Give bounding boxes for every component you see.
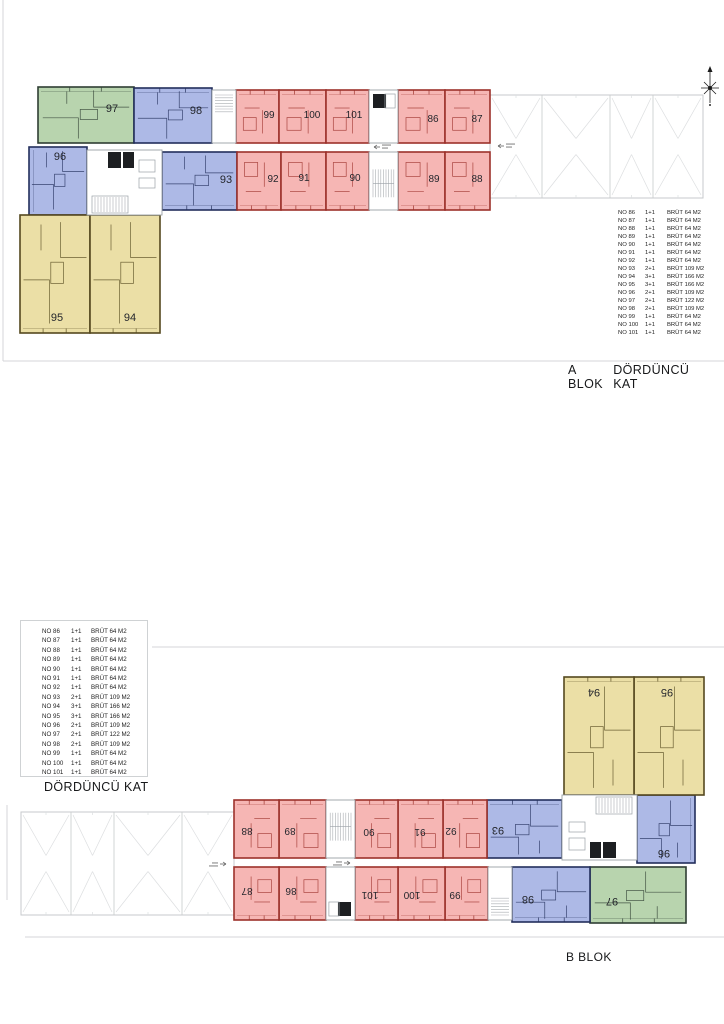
unit-number: NO 91 bbox=[42, 674, 71, 683]
plan-shape bbox=[506, 147, 512, 148]
unit-label-92: 92 bbox=[267, 174, 279, 185]
unit-list-row: NO 89 1+1 BRÜT 64 M2 bbox=[618, 233, 714, 241]
unit-list-row: NO 90 1+1 BRÜT 64 M2 bbox=[42, 665, 147, 674]
parking-area bbox=[21, 812, 234, 915]
unit-label-94: 94 bbox=[124, 312, 136, 324]
unit-area: BRÜT 109 M2 bbox=[667, 305, 714, 313]
unit-number: NO 101 bbox=[42, 768, 71, 777]
plan-shape bbox=[21, 812, 234, 915]
unit-label-99: 99 bbox=[263, 110, 275, 121]
unit-list-row: NO 89 1+1 BRÜT 64 M2 bbox=[42, 655, 147, 664]
unit-area: BRÜT 64 M2 bbox=[667, 233, 714, 241]
unit-list-row: NO 86 1+1 BRÜT 64 M2 bbox=[42, 627, 147, 636]
unit-list-row: NO 101 1+1 BRÜT 64 M2 bbox=[618, 329, 714, 337]
unit-number: NO 89 bbox=[618, 233, 645, 241]
unit-87: 87 bbox=[445, 90, 490, 143]
unit-type: 1+1 bbox=[71, 674, 91, 683]
unit-list-row: NO 99 1+1 BRÜT 64 M2 bbox=[42, 749, 147, 758]
elevator-shaft bbox=[590, 842, 601, 858]
caption-block-b: B BLOK bbox=[566, 950, 612, 964]
unit-area: BRÜT 64 M2 bbox=[91, 674, 147, 683]
unit-type: 1+1 bbox=[645, 209, 667, 217]
unit-type: 2+1 bbox=[71, 730, 91, 739]
unit-99: 99 bbox=[445, 867, 488, 920]
unit-label-92: 92 bbox=[445, 825, 457, 836]
unit-98: 98 bbox=[512, 867, 590, 922]
unit-92: 92 bbox=[237, 152, 281, 210]
unit-number: NO 90 bbox=[42, 665, 71, 674]
unit-list-row: NO 91 1+1 BRÜT 64 M2 bbox=[42, 674, 147, 683]
unit-list-row: NO 95 3+1 BRÜT 166 M2 bbox=[618, 281, 714, 289]
unit-list-row: NO 100 1+1 BRÜT 64 M2 bbox=[618, 321, 714, 329]
unit-number: NO 93 bbox=[618, 265, 645, 273]
unit-list-row: NO 96 2+1 BRÜT 109 M2 bbox=[618, 289, 714, 297]
unit-list-row: NO 101 1+1 BRÜT 64 M2 bbox=[42, 768, 147, 777]
unit-label-99: 99 bbox=[449, 889, 461, 900]
unit-label-95: 95 bbox=[661, 686, 673, 698]
unit-number: NO 89 bbox=[42, 655, 71, 664]
unit-area: BRÜT 122 M2 bbox=[667, 297, 714, 305]
plan-shape bbox=[382, 145, 391, 146]
unit-area: BRÜT 64 M2 bbox=[667, 313, 714, 321]
unit-label-98: 98 bbox=[190, 105, 202, 117]
unit-area: BRÜT 166 M2 bbox=[667, 273, 714, 281]
unit-number: NO 88 bbox=[618, 225, 645, 233]
arrow-icon bbox=[344, 861, 350, 865]
unit-93: 93 bbox=[487, 800, 562, 858]
unit-list-row: NO 99 1+1 BRÜT 64 M2 bbox=[618, 313, 714, 321]
unit-type: 1+1 bbox=[645, 329, 667, 337]
unit-type: 1+1 bbox=[71, 646, 91, 655]
unit-87: 87 bbox=[234, 867, 279, 920]
unit-number: NO 95 bbox=[618, 281, 645, 289]
unit-area: BRÜT 166 M2 bbox=[667, 281, 714, 289]
parking-area bbox=[490, 95, 703, 198]
unit-label-93: 93 bbox=[492, 824, 504, 836]
unit-type: 1+1 bbox=[645, 249, 667, 257]
plan-shape bbox=[38, 87, 134, 143]
plan-shape bbox=[209, 865, 218, 866]
plan-shape bbox=[336, 861, 342, 862]
unit-86: 86 bbox=[398, 90, 445, 143]
floor-plan-canvas: 9798991001018687969392919089889594979899… bbox=[0, 0, 724, 1024]
unit-number: NO 98 bbox=[618, 305, 645, 313]
unit-number: NO 100 bbox=[618, 321, 645, 329]
unit-list-row: NO 93 2+1 BRÜT 109 M2 bbox=[618, 265, 714, 273]
unit-97: 97 bbox=[38, 87, 134, 143]
unit-type: 1+1 bbox=[645, 233, 667, 241]
unit-label-96: 96 bbox=[658, 847, 670, 859]
unit-list-row: NO 90 1+1 BRÜT 64 M2 bbox=[618, 241, 714, 249]
unit-list-row: NO 88 1+1 BRÜT 64 M2 bbox=[618, 225, 714, 233]
unit-97: 97 bbox=[590, 867, 686, 923]
unit-area: BRÜT 64 M2 bbox=[91, 665, 147, 674]
unit-area: BRÜT 64 M2 bbox=[667, 249, 714, 257]
plan-shape bbox=[708, 66, 713, 72]
unit-92: 92 bbox=[443, 800, 487, 858]
unit-label-88: 88 bbox=[471, 174, 483, 185]
unit-area: BRÜT 64 M2 bbox=[91, 749, 147, 758]
unit-type: 1+1 bbox=[645, 217, 667, 225]
unit-type: 2+1 bbox=[645, 265, 667, 273]
unit-number: NO 94 bbox=[618, 273, 645, 281]
unit-type: 1+1 bbox=[645, 257, 667, 265]
unit-label-86: 86 bbox=[427, 114, 439, 125]
unit-99: 99 bbox=[236, 90, 279, 143]
unit-number: NO 100 bbox=[42, 759, 71, 768]
elevator-shaft bbox=[373, 94, 386, 108]
unit-89: 89 bbox=[279, 800, 326, 858]
unit-label-95: 95 bbox=[51, 312, 63, 324]
unit-list-row: NO 93 2+1 BRÜT 109 M2 bbox=[42, 693, 147, 702]
unit-100: 100 bbox=[398, 867, 445, 920]
unit-type: 3+1 bbox=[645, 281, 667, 289]
unit-type: 1+1 bbox=[71, 768, 91, 777]
corridor-annotation bbox=[333, 861, 350, 866]
unit-area: BRÜT 166 M2 bbox=[91, 712, 147, 721]
plan-shape bbox=[234, 800, 279, 858]
unit-94: 94 bbox=[564, 677, 634, 795]
unit-number: NO 87 bbox=[618, 217, 645, 225]
unit-area: BRÜT 64 M2 bbox=[667, 225, 714, 233]
unit-list-row: NO 92 1+1 BRÜT 64 M2 bbox=[42, 683, 147, 692]
unit-list-row: NO 91 1+1 BRÜT 64 M2 bbox=[618, 249, 714, 257]
unit-number: NO 94 bbox=[42, 702, 71, 711]
unit-101: 101 bbox=[355, 867, 398, 920]
unit-type: 2+1 bbox=[645, 305, 667, 313]
unit-list-row: NO 87 1+1 BRÜT 64 M2 bbox=[618, 217, 714, 225]
plan-shape bbox=[234, 867, 279, 920]
unit-88: 88 bbox=[445, 152, 490, 210]
unit-label-91: 91 bbox=[298, 173, 310, 184]
unit-type: 3+1 bbox=[71, 702, 91, 711]
unit-label-88: 88 bbox=[241, 825, 253, 836]
plan-shape bbox=[333, 864, 342, 865]
unit-list-row: NO 87 1+1 BRÜT 64 M2 bbox=[42, 636, 147, 645]
unit-number: NO 98 bbox=[42, 740, 71, 749]
unit-96: 96 bbox=[29, 147, 87, 215]
elevator-shaft bbox=[603, 842, 616, 858]
unit-list-row: NO 86 1+1 BRÜT 64 M2 bbox=[618, 209, 714, 217]
unit-number: NO 96 bbox=[618, 289, 645, 297]
unit-list-row: NO 92 1+1 BRÜT 64 M2 bbox=[618, 257, 714, 265]
unit-number: NO 96 bbox=[42, 721, 71, 730]
unit-area: BRÜT 109 M2 bbox=[91, 721, 147, 730]
unit-number: NO 99 bbox=[618, 313, 645, 321]
unit-list-b-box: NO 86 1+1 BRÜT 64 M2 NO 87 1+1 BRÜT 64 M… bbox=[20, 620, 148, 777]
unit-list-row: NO 96 2+1 BRÜT 109 M2 bbox=[42, 721, 147, 730]
unit-number: NO 90 bbox=[618, 241, 645, 249]
corridor-annotation bbox=[374, 145, 391, 150]
unit-label-96: 96 bbox=[54, 151, 66, 163]
unit-type: 1+1 bbox=[645, 225, 667, 233]
unit-list-row: NO 94 3+1 BRÜT 166 M2 bbox=[42, 702, 147, 711]
caption-floor-b: DÖRDÜNCÜ KAT bbox=[44, 780, 149, 794]
unit-type: 2+1 bbox=[645, 289, 667, 297]
unit-list-row: NO 97 2+1 BRÜT 122 M2 bbox=[618, 297, 714, 305]
unit-label-101: 101 bbox=[346, 110, 363, 121]
unit-area: BRÜT 109 M2 bbox=[91, 693, 147, 702]
unit-88: 88 bbox=[234, 800, 279, 858]
unit-type: 1+1 bbox=[71, 759, 91, 768]
north-arrow-icon bbox=[701, 66, 719, 106]
unit-list-row: NO 98 2+1 BRÜT 109 M2 bbox=[618, 305, 714, 313]
plan-shape bbox=[382, 148, 388, 149]
elevator-shaft bbox=[108, 152, 121, 168]
unit-type: 2+1 bbox=[645, 297, 667, 305]
unit-area: BRÜT 166 M2 bbox=[91, 702, 147, 711]
unit-label-91: 91 bbox=[414, 826, 426, 837]
plan-shape bbox=[490, 95, 703, 198]
unit-area: BRÜT 64 M2 bbox=[91, 646, 147, 655]
unit-area: BRÜT 64 M2 bbox=[91, 683, 147, 692]
plan-shape bbox=[506, 144, 515, 145]
unit-type: 3+1 bbox=[645, 273, 667, 281]
unit-number: NO 92 bbox=[42, 683, 71, 692]
plan-shape bbox=[445, 152, 490, 210]
unit-number: NO 99 bbox=[42, 749, 71, 758]
unit-area: BRÜT 109 M2 bbox=[667, 265, 714, 273]
unit-area: BRÜT 109 M2 bbox=[91, 740, 147, 749]
plan-shape bbox=[445, 90, 490, 143]
unit-type: 1+1 bbox=[645, 241, 667, 249]
unit-area: BRÜT 64 M2 bbox=[91, 759, 147, 768]
unit-area: BRÜT 64 M2 bbox=[91, 655, 147, 664]
unit-area: BRÜT 64 M2 bbox=[91, 636, 147, 645]
unit-93: 93 bbox=[162, 152, 237, 210]
unit-number: NO 88 bbox=[42, 646, 71, 655]
unit-type: 1+1 bbox=[71, 636, 91, 645]
unit-area: BRÜT 122 M2 bbox=[91, 730, 147, 739]
block-a-label: A BLOK bbox=[568, 363, 613, 391]
unit-label-100: 100 bbox=[403, 889, 420, 900]
unit-type: 2+1 bbox=[71, 721, 91, 730]
unit-number: NO 101 bbox=[618, 329, 645, 337]
unit-type: 1+1 bbox=[71, 627, 91, 636]
unit-area: BRÜT 64 M2 bbox=[667, 257, 714, 265]
unit-area: BRÜT 64 M2 bbox=[667, 329, 714, 337]
page: 9798991001018687969392919089889594979899… bbox=[0, 0, 724, 1024]
unit-area: BRÜT 64 M2 bbox=[91, 627, 147, 636]
unit-label-100: 100 bbox=[304, 110, 321, 121]
unit-type: 1+1 bbox=[71, 749, 91, 758]
unit-type: 1+1 bbox=[71, 683, 91, 692]
unit-area: BRÜT 64 M2 bbox=[91, 768, 147, 777]
elevator-shaft bbox=[123, 152, 134, 168]
unit-number: NO 92 bbox=[618, 257, 645, 265]
unit-label-97: 97 bbox=[606, 895, 618, 907]
unit-label-97: 97 bbox=[106, 103, 118, 115]
unit-area: BRÜT 64 M2 bbox=[667, 217, 714, 225]
unit-list-row: NO 97 2+1 BRÜT 122 M2 bbox=[42, 730, 147, 739]
unit-98: 98 bbox=[134, 88, 212, 143]
unit-label-87: 87 bbox=[471, 114, 483, 125]
unit-list-a: NO 86 1+1 BRÜT 64 M2 NO 87 1+1 BRÜT 64 M… bbox=[618, 209, 714, 337]
arrow-icon bbox=[374, 145, 380, 149]
unit-type: 3+1 bbox=[71, 712, 91, 721]
unit-label-86: 86 bbox=[285, 885, 297, 896]
unit-list-row: NO 95 3+1 BRÜT 166 M2 bbox=[42, 712, 147, 721]
unit-number: NO 86 bbox=[42, 627, 71, 636]
unit-type: 1+1 bbox=[71, 665, 91, 674]
plan-shape bbox=[355, 800, 398, 858]
unit-number: NO 93 bbox=[42, 693, 71, 702]
unit-91: 91 bbox=[398, 800, 443, 858]
unit-label-90: 90 bbox=[363, 826, 375, 837]
unit-90: 90 bbox=[355, 800, 398, 858]
unit-86: 86 bbox=[279, 867, 326, 920]
unit-number: NO 97 bbox=[618, 297, 645, 305]
unit-96: 96 bbox=[637, 795, 695, 863]
unit-label-93: 93 bbox=[220, 174, 232, 186]
caption-block-a: A BLOK DÖRDÜNCÜ KAT bbox=[568, 363, 714, 391]
unit-94: 94 bbox=[90, 215, 160, 333]
unit-label-87: 87 bbox=[241, 885, 253, 896]
unit-91: 91 bbox=[281, 152, 326, 210]
unit-label-94: 94 bbox=[588, 686, 600, 698]
unit-area: BRÜT 64 M2 bbox=[667, 209, 714, 217]
plan-shape bbox=[590, 867, 686, 923]
unit-area: BRÜT 64 M2 bbox=[667, 321, 714, 329]
unit-list-row: NO 100 1+1 BRÜT 64 M2 bbox=[42, 759, 147, 768]
unit-type: 2+1 bbox=[71, 740, 91, 749]
unit-number: NO 86 bbox=[618, 209, 645, 217]
unit-95: 95 bbox=[20, 215, 90, 333]
plan-shape bbox=[326, 152, 369, 210]
unit-label-89: 89 bbox=[284, 825, 296, 836]
unit-list-row: NO 98 2+1 BRÜT 109 M2 bbox=[42, 740, 147, 749]
unit-label-101: 101 bbox=[361, 889, 378, 900]
unit-area: BRÜT 109 M2 bbox=[667, 289, 714, 297]
unit-list-b: NO 86 1+1 BRÜT 64 M2 NO 87 1+1 BRÜT 64 M… bbox=[42, 627, 147, 778]
plan-shape bbox=[212, 862, 218, 863]
unit-95: 95 bbox=[634, 677, 704, 795]
unit-number: NO 97 bbox=[42, 730, 71, 739]
unit-number: NO 95 bbox=[42, 712, 71, 721]
unit-101: 101 bbox=[326, 90, 369, 143]
unit-number: NO 87 bbox=[42, 636, 71, 645]
unit-89: 89 bbox=[398, 152, 445, 210]
unit-type: 1+1 bbox=[645, 313, 667, 321]
elevator-shaft bbox=[338, 902, 351, 916]
unit-type: 1+1 bbox=[71, 655, 91, 664]
unit-type: 1+1 bbox=[645, 321, 667, 329]
floor-a-label: DÖRDÜNCÜ KAT bbox=[613, 363, 714, 391]
unit-list-row: NO 88 1+1 BRÜT 64 M2 bbox=[42, 646, 147, 655]
unit-list-row: NO 94 3+1 BRÜT 166 M2 bbox=[618, 273, 714, 281]
unit-area: BRÜT 64 M2 bbox=[667, 241, 714, 249]
plan-shape bbox=[708, 86, 712, 90]
unit-type: 2+1 bbox=[71, 693, 91, 702]
unit-label-89: 89 bbox=[428, 174, 440, 185]
plan-a: 9798991001018687969392919089889594 bbox=[20, 87, 703, 333]
unit-label-98: 98 bbox=[522, 893, 534, 905]
unit-label-90: 90 bbox=[349, 173, 361, 184]
unit-number: NO 91 bbox=[618, 249, 645, 257]
unit-90: 90 bbox=[326, 152, 369, 210]
unit-100: 100 bbox=[279, 90, 326, 143]
